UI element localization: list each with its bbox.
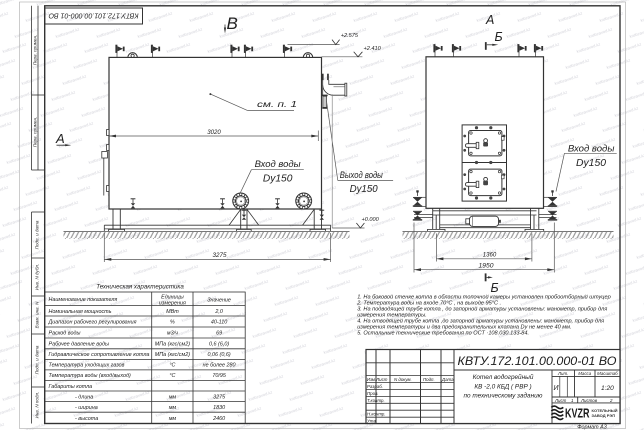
svg-text:не более 280: не более 280 xyxy=(203,363,236,369)
svg-text:МПа (кгс/см2): МПа (кгс/см2) xyxy=(155,352,190,358)
svg-text:°С: °С xyxy=(169,363,175,369)
svg-text:Подп. и дата: Подп. и дата xyxy=(35,220,40,249)
svg-text:0,06 (0,6): 0,06 (0,6) xyxy=(208,352,231,358)
svg-text:Габариты котла: Габариты котла xyxy=(49,384,93,390)
svg-text:Температура воды (вход/выход): Температура воды (вход/выход) xyxy=(49,373,132,379)
svg-text:°С: °С xyxy=(169,373,175,379)
svg-text:Т.контр.: Т.контр. xyxy=(367,398,385,403)
svg-text:3275: 3275 xyxy=(213,252,227,259)
svg-text:Масса: Масса xyxy=(578,371,592,376)
svg-text:измерения температуры.: измерения температуры. xyxy=(357,312,427,318)
svg-text:м3/ч: м3/ч xyxy=(167,331,178,337)
svg-text:Подп.: Подп. xyxy=(423,377,435,382)
svg-text:Дата: Дата xyxy=(441,377,454,382)
svg-text:КВТУ.172.101.00.000-01 ВО: КВТУ.172.101.00.000-01 ВО xyxy=(458,354,617,368)
svg-text:Инв. N подл.: Инв. N подл. xyxy=(35,392,40,419)
svg-text:Н.контр.: Н.контр. xyxy=(367,412,386,417)
svg-text:Утв.: Утв. xyxy=(367,418,377,423)
svg-text:Перв. примен.: Перв. примен. xyxy=(33,35,38,66)
svg-text:69: 69 xyxy=(216,331,222,337)
svg-text:- высота: - высота xyxy=(75,416,98,422)
svg-text:Техническая характеристика: Техническая характеристика xyxy=(96,283,184,290)
svg-text:Подп. и дата: Подп. и дата xyxy=(35,345,40,374)
svg-text:КВ -2,0 КБД ( РВР ): КВ -2,0 КБД ( РВР ) xyxy=(474,384,531,391)
svg-text:Наименование показателя: Наименование показателя xyxy=(49,297,118,303)
svg-text:Рабочее давление воды: Рабочее давление воды xyxy=(49,341,109,347)
svg-text:2: 2 xyxy=(609,398,613,403)
svg-text:Взам. инв. N: Взам. инв. N xyxy=(35,301,40,328)
svg-text:Изм.Лист: Изм.Лист xyxy=(367,377,388,382)
svg-text:+2.575: +2.575 xyxy=(341,33,359,39)
svg-text:Лит.: Лит. xyxy=(557,371,568,376)
svg-text:Dy150: Dy150 xyxy=(263,173,293,184)
svg-text:Котел водогрейный: Котел водогрейный xyxy=(473,373,534,381)
svg-text:А: А xyxy=(55,131,65,146)
svg-text:В: В xyxy=(227,14,238,33)
svg-text:по техническому заданию: по техническому заданию xyxy=(464,392,543,400)
svg-text:см. п. 1: см. п. 1 xyxy=(257,99,297,109)
svg-text:Масштаб: Масштаб xyxy=(597,371,618,376)
svg-text:- ширина: - ширина xyxy=(75,405,98,411)
svg-text:+0.000: +0.000 xyxy=(362,217,380,223)
svg-text:1360: 1360 xyxy=(483,252,497,259)
svg-text:Номинальная мощность: Номинальная мощность xyxy=(49,309,112,315)
svg-text:Лист: Лист xyxy=(554,398,567,403)
svg-text:Листов: Листов xyxy=(580,398,598,403)
svg-text:мм: мм xyxy=(169,394,177,400)
svg-text:N докум.: N докум. xyxy=(394,377,412,382)
svg-text:Температура уходящих газов: Температура уходящих газов xyxy=(49,363,125,369)
svg-text:МПа (кгс/см2): МПа (кгс/см2) xyxy=(155,341,190,347)
svg-text:КВТУ.172.101.00.000-01 ВО: КВТУ.172.101.00.000-01 ВО xyxy=(48,11,138,20)
svg-text:Расход воды: Расход воды xyxy=(49,331,81,337)
svg-text:Вход воды: Вход воды xyxy=(568,143,615,153)
svg-text:Перв. примен.: Перв. примен. xyxy=(33,117,38,148)
svg-text:3020: 3020 xyxy=(207,129,221,136)
svg-text:измерения: измерения xyxy=(159,300,186,306)
svg-text:%: % xyxy=(170,320,175,326)
svg-text:Пров.: Пров. xyxy=(367,391,379,396)
svg-text:Разраб.: Разраб. xyxy=(367,384,383,389)
svg-text:Dy150: Dy150 xyxy=(576,158,606,169)
svg-text:ЗАВОД РЭП: ЗАВОД РЭП xyxy=(592,413,616,418)
svg-text:1:20: 1:20 xyxy=(601,385,614,392)
svg-text:5. Остальные технические треб: 5. Остальные технические требования по О… xyxy=(357,330,529,336)
svg-text:- длина: - длина xyxy=(75,394,93,400)
svg-text:KVZR: KVZR xyxy=(565,407,590,421)
svg-text:Гидравлическое сопротивление к: Гидравлическое сопротивление котла xyxy=(49,352,150,358)
svg-text:70/95: 70/95 xyxy=(212,373,226,379)
svg-text:Вход воды: Вход воды xyxy=(255,159,302,169)
svg-text:Б: Б xyxy=(495,30,503,44)
svg-text:3275: 3275 xyxy=(213,394,226,400)
svg-text:мм: мм xyxy=(169,405,177,411)
svg-text:Инв. N дубл.: Инв. N дубл. xyxy=(35,264,40,291)
svg-text:+2.410: +2.410 xyxy=(364,46,382,52)
svg-text:Dy150: Dy150 xyxy=(350,184,378,195)
svg-text:мм: мм xyxy=(169,416,177,422)
svg-text:1. На боковой стенке котла в: 1. На боковой стенке котла в области топ… xyxy=(357,294,611,301)
svg-text:2460: 2460 xyxy=(212,416,225,422)
svg-text:0,6 (6,0): 0,6 (6,0) xyxy=(209,341,229,347)
svg-text:1950: 1950 xyxy=(479,263,494,270)
svg-text:40-110: 40-110 xyxy=(211,320,227,326)
svg-text:МВт: МВт xyxy=(166,309,179,315)
svg-text:Значение: Значение xyxy=(207,297,231,303)
svg-text:А: А xyxy=(485,13,494,27)
svg-text:Б: Б xyxy=(491,281,499,295)
svg-text:1830: 1830 xyxy=(213,405,225,411)
svg-text:Формат А3: Формат А3 xyxy=(577,424,607,430)
svg-text:Диапазон рабочего регулировани: Диапазон рабочего регулирования xyxy=(48,320,137,326)
svg-text:Выход воды: Выход воды xyxy=(340,170,383,180)
svg-text:2,0: 2,0 xyxy=(214,309,223,315)
